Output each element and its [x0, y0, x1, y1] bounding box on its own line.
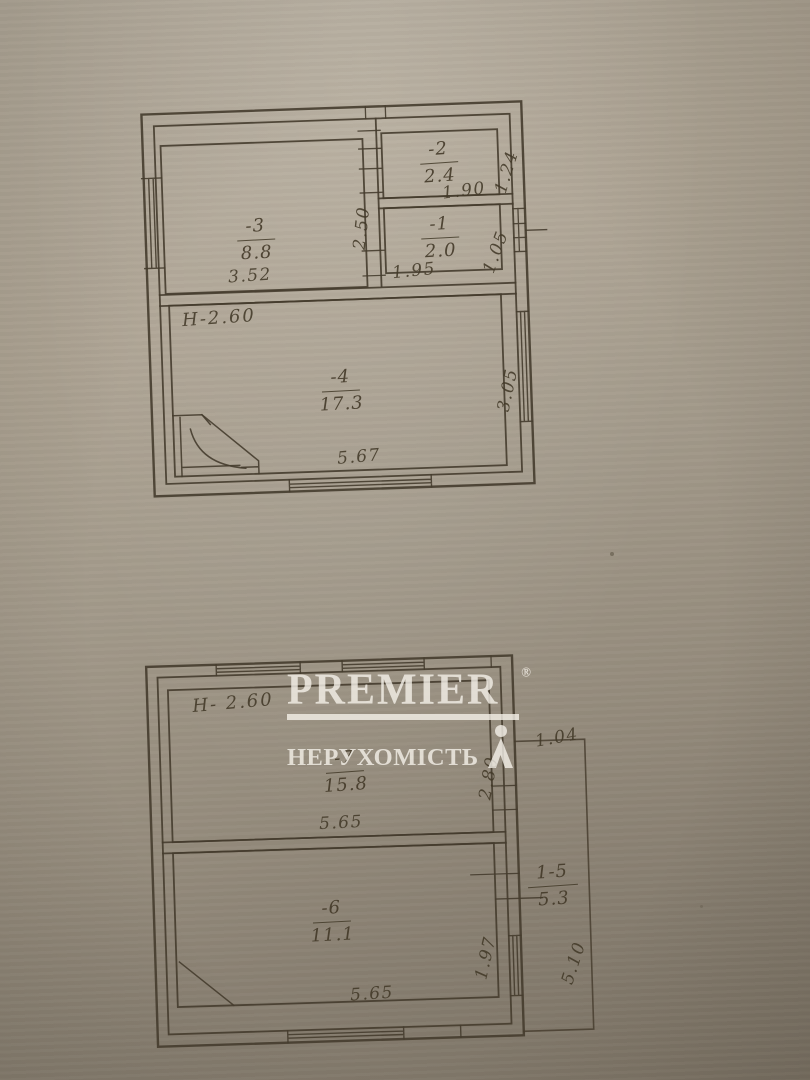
room-area: 8.8 — [237, 239, 276, 265]
room-label-4: -4 17.3 — [318, 365, 365, 416]
room-label-2: -2 2.4 — [419, 137, 460, 188]
room-number: -1 — [420, 213, 459, 239]
window-right-small — [513, 208, 547, 252]
logo-subtitle: НЕРУХОМІСТЬ — [287, 745, 479, 772]
upper-plan-walls — [139, 101, 555, 497]
room-area: 15.8 — [323, 770, 369, 798]
corner-diagonal — [179, 960, 233, 1007]
room-area: 17.3 — [319, 390, 364, 417]
room-area: 11.1 — [310, 921, 355, 948]
room-label-1: -1 2.0 — [420, 213, 460, 264]
dim-room3-width: 3.52 — [227, 264, 272, 287]
corner-stove — [173, 413, 259, 477]
dim-room4-width: 5.67 — [336, 445, 381, 469]
dim-room7-width: 5.65 — [319, 812, 364, 834]
room-number: -2 — [419, 137, 458, 164]
room-area: 5.3 — [528, 884, 580, 912]
premier-brand: PREMIER ® — [287, 668, 519, 712]
room-label-5: 1-5 5.3 — [526, 860, 579, 912]
premier-figure-icon — [485, 724, 515, 774]
dim-room6-width: 5.65 — [349, 982, 394, 1005]
room-number: -4 — [321, 366, 360, 392]
registered-mark: ® — [521, 664, 531, 681]
logo-bar — [287, 714, 519, 720]
floor-plan-drawing — [0, 0, 810, 1080]
room-label-6: -6 11.1 — [309, 896, 356, 947]
room-label-3: -3 8.8 — [236, 215, 276, 266]
room-number: 1-5 — [526, 860, 578, 888]
room-number: -3 — [236, 215, 275, 241]
room-number: -6 — [312, 897, 351, 923]
brand-text: PREMIER — [287, 666, 499, 714]
premier-watermark: PREMIER ® НЕРУХОМІСТЬ — [287, 669, 519, 772]
